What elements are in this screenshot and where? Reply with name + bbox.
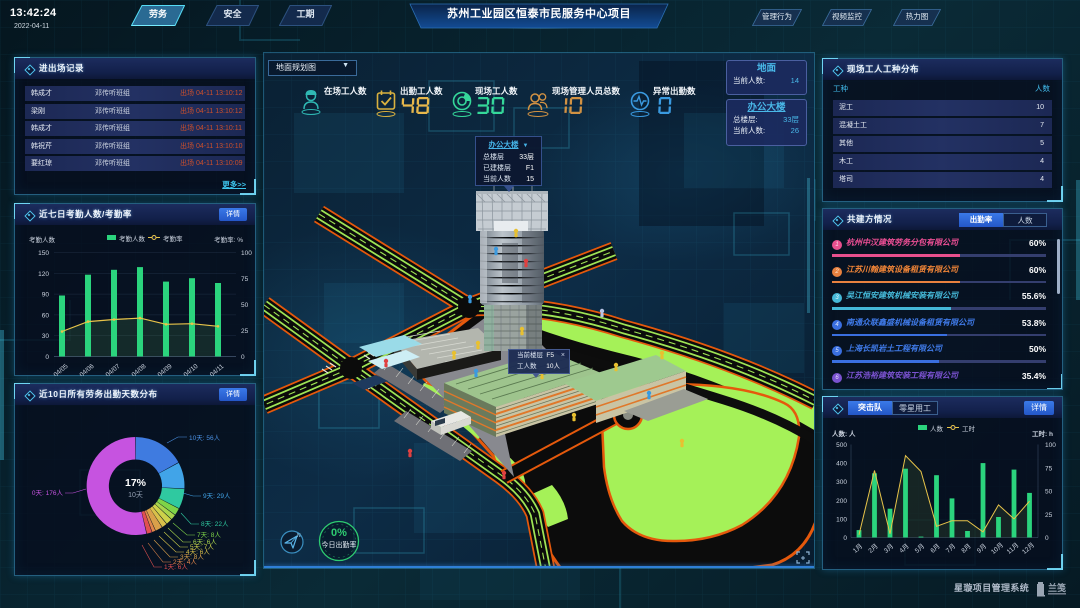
svg-text:8天: 22人: 8天: 22人 <box>201 520 229 528</box>
svg-text:150: 150 <box>38 250 49 257</box>
svg-text:60: 60 <box>42 312 50 319</box>
svg-text:9月: 9月 <box>975 542 988 555</box>
svg-text:7天: 8人: 7天: 8人 <box>197 531 221 539</box>
svg-text:1月: 1月 <box>851 542 864 555</box>
svg-text:200: 200 <box>836 498 847 505</box>
svg-text:12月: 12月 <box>1020 541 1036 556</box>
svg-text:11月: 11月 <box>1005 541 1020 556</box>
svg-text:人数: 人: 人数: 人 <box>832 429 856 438</box>
svg-text:4月: 4月 <box>898 542 911 555</box>
svg-text:工时: h: 工时: h <box>1032 429 1053 438</box>
svg-text:25: 25 <box>241 328 249 335</box>
svg-text:考勤率: %: 考勤率: % <box>214 235 243 244</box>
svg-text:300: 300 <box>836 479 847 486</box>
svg-text:10天: 56人: 10天: 56人 <box>189 434 221 442</box>
svg-text:100: 100 <box>1045 442 1056 449</box>
svg-text:04/09: 04/09 <box>157 363 174 376</box>
svg-text:考勤率: 考勤率 <box>163 234 183 243</box>
svg-text:04/05: 04/05 <box>53 363 70 376</box>
svg-text:5月: 5月 <box>913 542 926 555</box>
svg-text:04/11: 04/11 <box>209 363 226 376</box>
svg-text:考勤人数: 考勤人数 <box>29 235 56 244</box>
svg-text:50: 50 <box>1045 489 1053 496</box>
svg-text:30: 30 <box>42 333 50 340</box>
svg-text:04/10: 04/10 <box>183 363 200 376</box>
svg-text:04/07: 04/07 <box>105 363 122 376</box>
svg-text:8月: 8月 <box>960 542 973 555</box>
svg-text:400: 400 <box>836 461 847 468</box>
svg-text:75: 75 <box>241 276 249 283</box>
svg-text:0: 0 <box>241 354 245 361</box>
svg-text:9天: 29人: 9天: 29人 <box>203 492 231 500</box>
svg-text:10月: 10月 <box>989 541 1005 556</box>
svg-text:04/08: 04/08 <box>131 363 148 376</box>
svg-text:0: 0 <box>1045 535 1049 542</box>
svg-text:N: N <box>297 533 301 539</box>
svg-text:7月: 7月 <box>944 542 957 555</box>
svg-text:90: 90 <box>42 292 50 299</box>
svg-text:考勤人数: 考勤人数 <box>119 234 146 243</box>
svg-text:25: 25 <box>1045 512 1053 519</box>
svg-text:0天: 176人: 0天: 176人 <box>32 489 64 497</box>
svg-text:兰笺: 兰笺 <box>1048 582 1066 593</box>
svg-text:工时: 工时 <box>962 424 976 433</box>
svg-text:100: 100 <box>836 516 847 523</box>
svg-text:3月: 3月 <box>882 542 895 555</box>
svg-text:500: 500 <box>836 442 847 449</box>
svg-text:10天: 10天 <box>128 491 143 499</box>
svg-text:120: 120 <box>38 271 49 278</box>
svg-text:50: 50 <box>241 302 249 309</box>
svg-text:0: 0 <box>843 535 847 542</box>
svg-text:100: 100 <box>241 250 252 257</box>
svg-text:17%: 17% <box>125 477 147 489</box>
svg-text:0: 0 <box>45 354 49 361</box>
svg-text:75: 75 <box>1045 465 1053 472</box>
svg-text:04/06: 04/06 <box>79 363 96 376</box>
svg-text:人数: 人数 <box>930 424 944 433</box>
svg-text:6月: 6月 <box>929 542 942 555</box>
svg-text:2月: 2月 <box>867 542 880 555</box>
svg-text:1天: 6人: 1天: 6人 <box>164 563 188 571</box>
